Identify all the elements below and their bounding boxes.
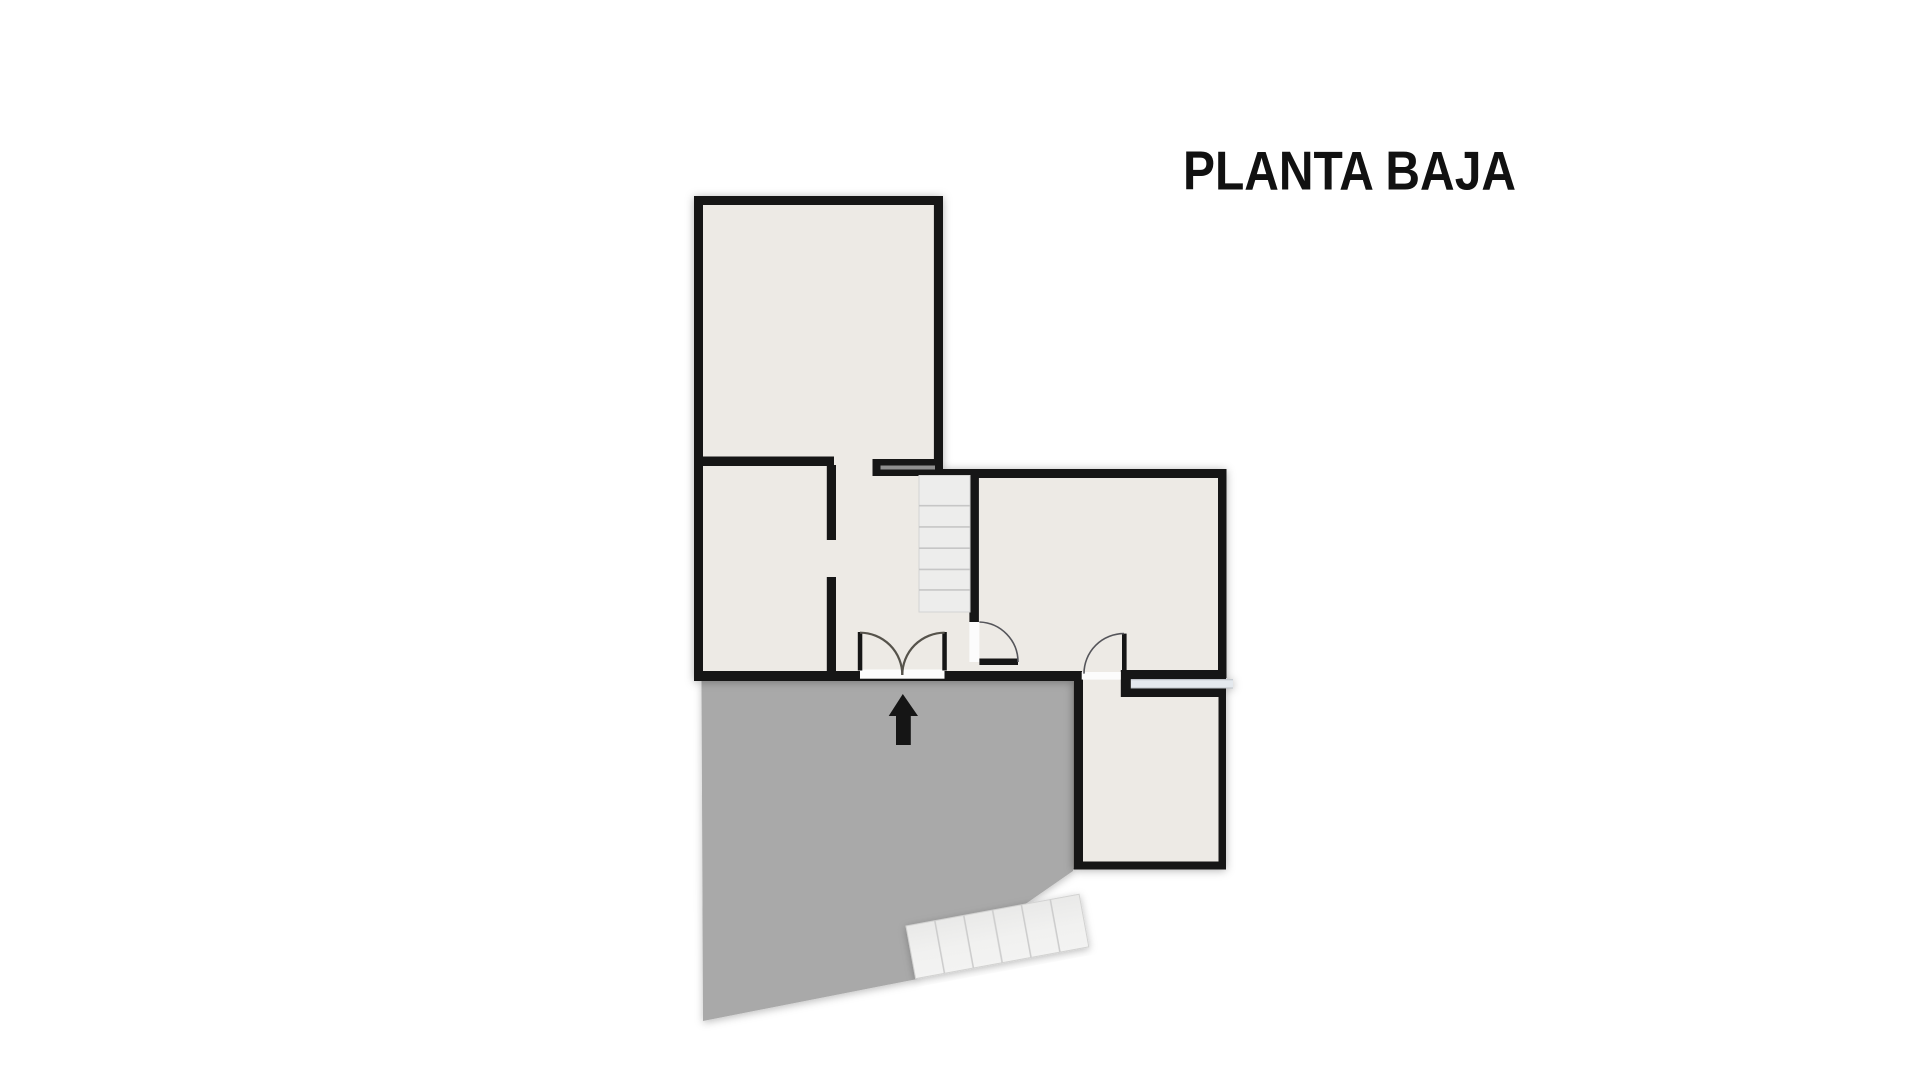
svg-text:PLANTA BAJA: PLANTA BAJA [1183,140,1516,202]
